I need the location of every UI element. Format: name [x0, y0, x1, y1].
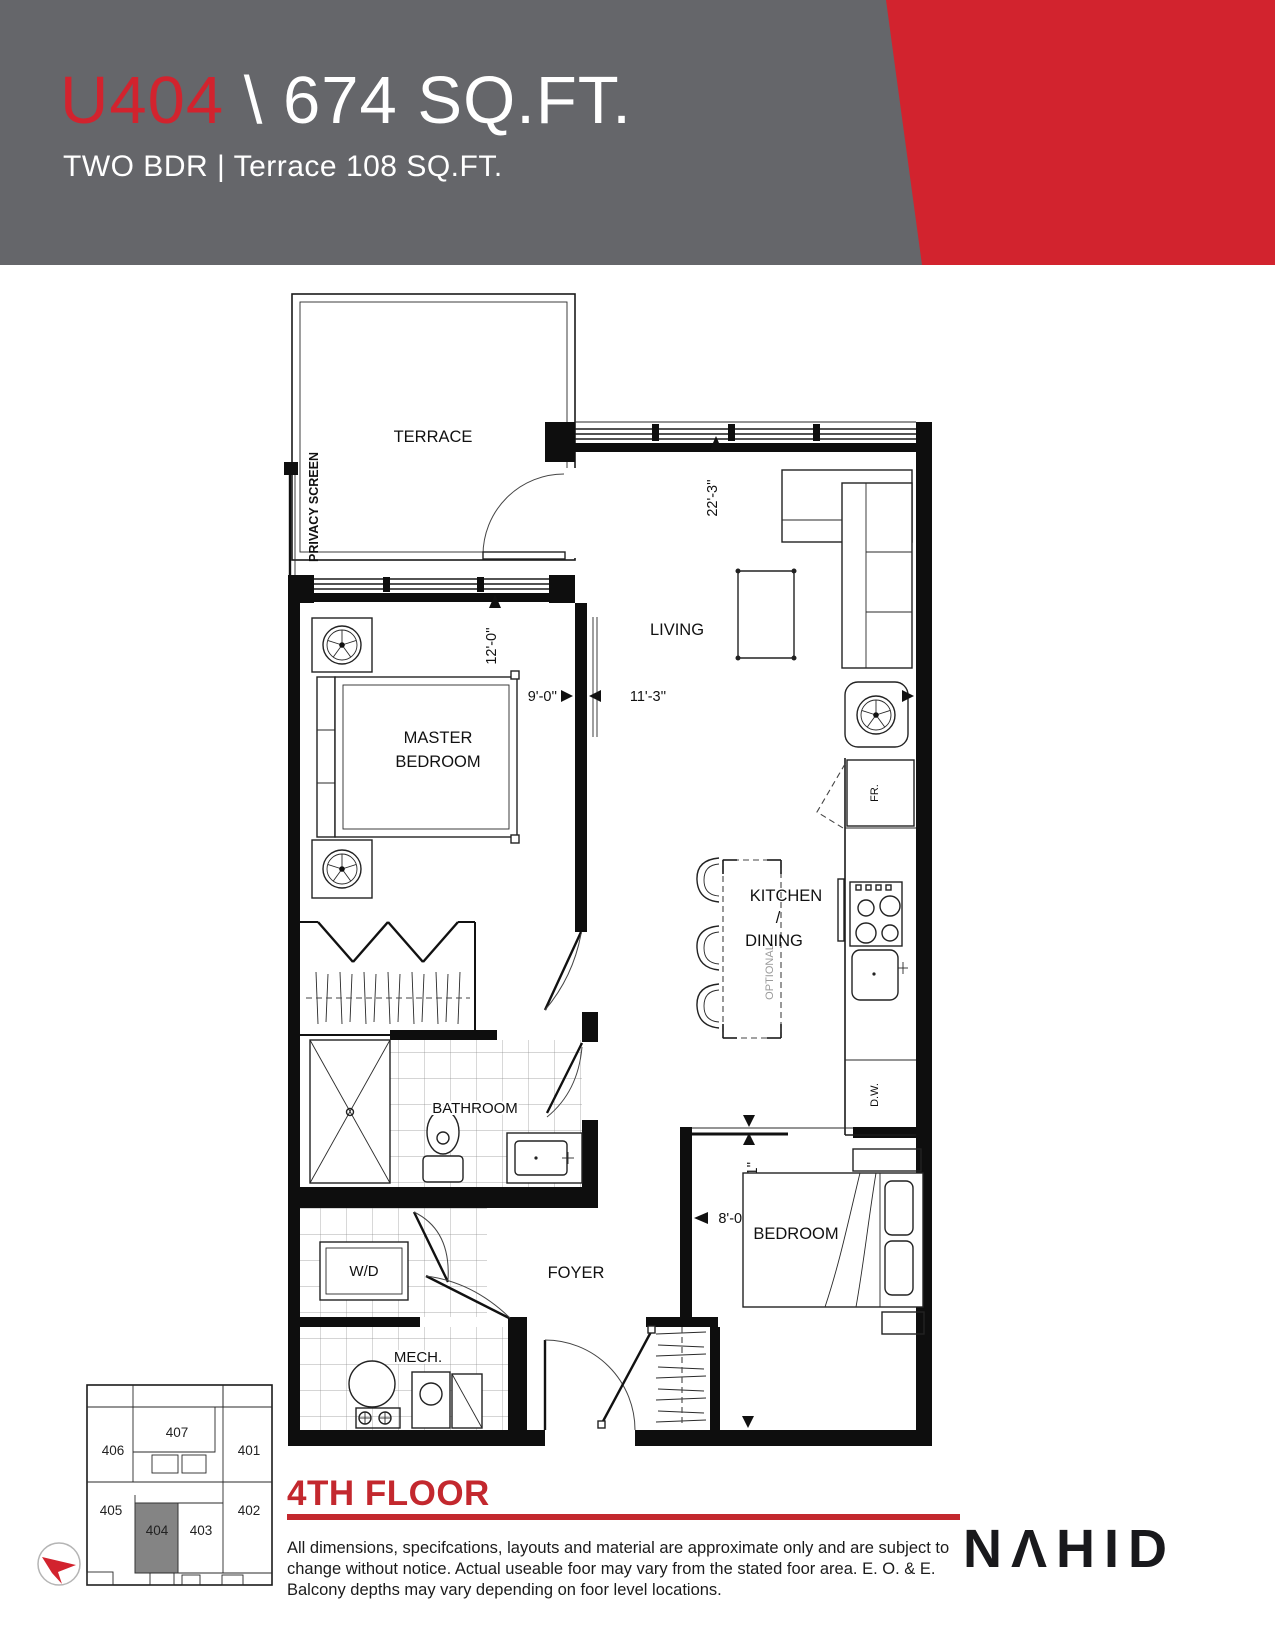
keyplan-unit-402: 402	[238, 1503, 261, 1518]
terrace-door-swing	[483, 474, 564, 555]
master-label-line2: BEDROOM	[395, 753, 480, 771]
laundry-label: W/D	[349, 1263, 378, 1280]
second-bedroom: 9'-11'' 8'-0'' BEDROOM	[598, 1115, 924, 1428]
foyer-label: FOYER	[548, 1264, 605, 1282]
master-window-wall	[314, 593, 549, 602]
shelf	[853, 1149, 921, 1171]
living-label: LIVING	[650, 621, 704, 639]
dining: OPTIONAL KITCHEN / DINING	[697, 858, 822, 1038]
dishwasher-label: D.W.	[869, 1083, 881, 1107]
terrace-door	[483, 552, 565, 559]
keyplan-unit-404-highlight	[135, 1503, 178, 1573]
master-door	[545, 932, 581, 1010]
master-bedroom: MASTER BEDROOM 12'-0'' 9'-0'' 11'-3''	[312, 594, 914, 1010]
kitchen: FR. D.W.	[817, 758, 916, 1135]
red-accent-polygon	[886, 0, 1275, 265]
bedroom-label: BEDROOM	[753, 1225, 838, 1243]
bedroom-wall	[680, 1127, 692, 1317]
mech-equipment	[412, 1372, 450, 1428]
floor-title: 4TH FLOOR	[287, 1474, 490, 1514]
floorplan-drawing: PRIVACY SCREEN TERRACE	[268, 272, 948, 1457]
mech-label: MECH.	[394, 1349, 442, 1366]
unit-subtitle: TWO BDR | Terrace 108 SQ.FT.	[63, 150, 503, 184]
terrace-label: TERRACE	[394, 428, 473, 446]
living-room: LIVING 22'-3''	[650, 436, 912, 747]
dining-chair	[697, 984, 719, 1028]
north-arrow-icon	[42, 1557, 76, 1584]
optional-label: OPTIONAL	[764, 944, 776, 1000]
master-partition-wall	[575, 603, 587, 932]
dining-chair	[697, 858, 719, 902]
bedroom-closet-door	[601, 1330, 652, 1425]
bottom-wall-left	[288, 1430, 545, 1446]
water-heater	[349, 1361, 395, 1407]
fridge-label: FR.	[869, 784, 881, 802]
bedroom-closet-hangers	[656, 1332, 706, 1422]
living-length-dim: 22'-3''	[705, 479, 721, 517]
header-banner: U404 \ 674 SQ.FT. TWO BDR | Terrace 108 …	[0, 0, 1275, 265]
keyplan-unit-403: 403	[190, 1523, 213, 1538]
living-width-dim: 11'-3''	[630, 689, 666, 705]
bathroom-bottom-wall	[300, 1187, 598, 1208]
unit-area	[224, 63, 244, 138]
keyplan-unit-406: 406	[102, 1443, 125, 1458]
keyplan-unit-407: 407	[166, 1425, 189, 1440]
headboard	[317, 677, 335, 837]
kitchen-dining-divider: /	[776, 909, 781, 927]
keyplan-unit-404: 404	[146, 1523, 169, 1538]
ceiling-fan-icon	[323, 850, 361, 888]
title-rest: \ 674 SQ.FT.	[244, 63, 632, 138]
ceiling-fan-icon	[857, 696, 895, 734]
master-width-dim: 9'-0''	[528, 689, 557, 705]
page-title: U404 \ 674 SQ.FT.	[60, 62, 632, 139]
oven-handle	[838, 879, 844, 941]
keyplan-unit-405: 405	[100, 1503, 123, 1518]
privacy-screen-label: PRIVACY SCREEN	[307, 452, 321, 562]
sofa-chaise	[842, 483, 912, 668]
kitchen-label: KITCHEN	[750, 887, 822, 905]
floorplan-sheet: U404 \ 674 SQ.FT. TWO BDR | Terrace 108 …	[0, 0, 1275, 1650]
footer-divider	[287, 1514, 960, 1520]
living-window-wall	[575, 443, 916, 452]
left-wall	[288, 603, 300, 1446]
keyplan: 407 406 401 405 404 403 402	[30, 1375, 280, 1610]
terrace: PRIVACY SCREEN TERRACE	[284, 294, 577, 575]
keyplan-unit-401: 401	[238, 1443, 261, 1458]
unit-number: U404	[60, 63, 224, 138]
ceiling-fan-icon	[323, 626, 361, 664]
nahid-logo: NΛHID	[963, 1518, 1176, 1580]
coffee-table	[738, 571, 794, 658]
master-depth-dim: 12'-0''	[484, 627, 500, 665]
disclaimer-text: All dimensions, specifcations, layouts a…	[287, 1538, 987, 1601]
foyer: FOYER	[545, 1264, 754, 1430]
master-label-line1: MASTER	[404, 729, 473, 747]
bathroom-label: BATHROOM	[432, 1100, 518, 1117]
toilet-tank	[423, 1156, 463, 1182]
bottom-wall-right	[635, 1430, 932, 1446]
master-closet	[306, 922, 470, 1024]
dining-label: DINING	[745, 932, 803, 950]
privacy-screen-cap	[284, 462, 298, 475]
dining-chair	[697, 926, 719, 970]
